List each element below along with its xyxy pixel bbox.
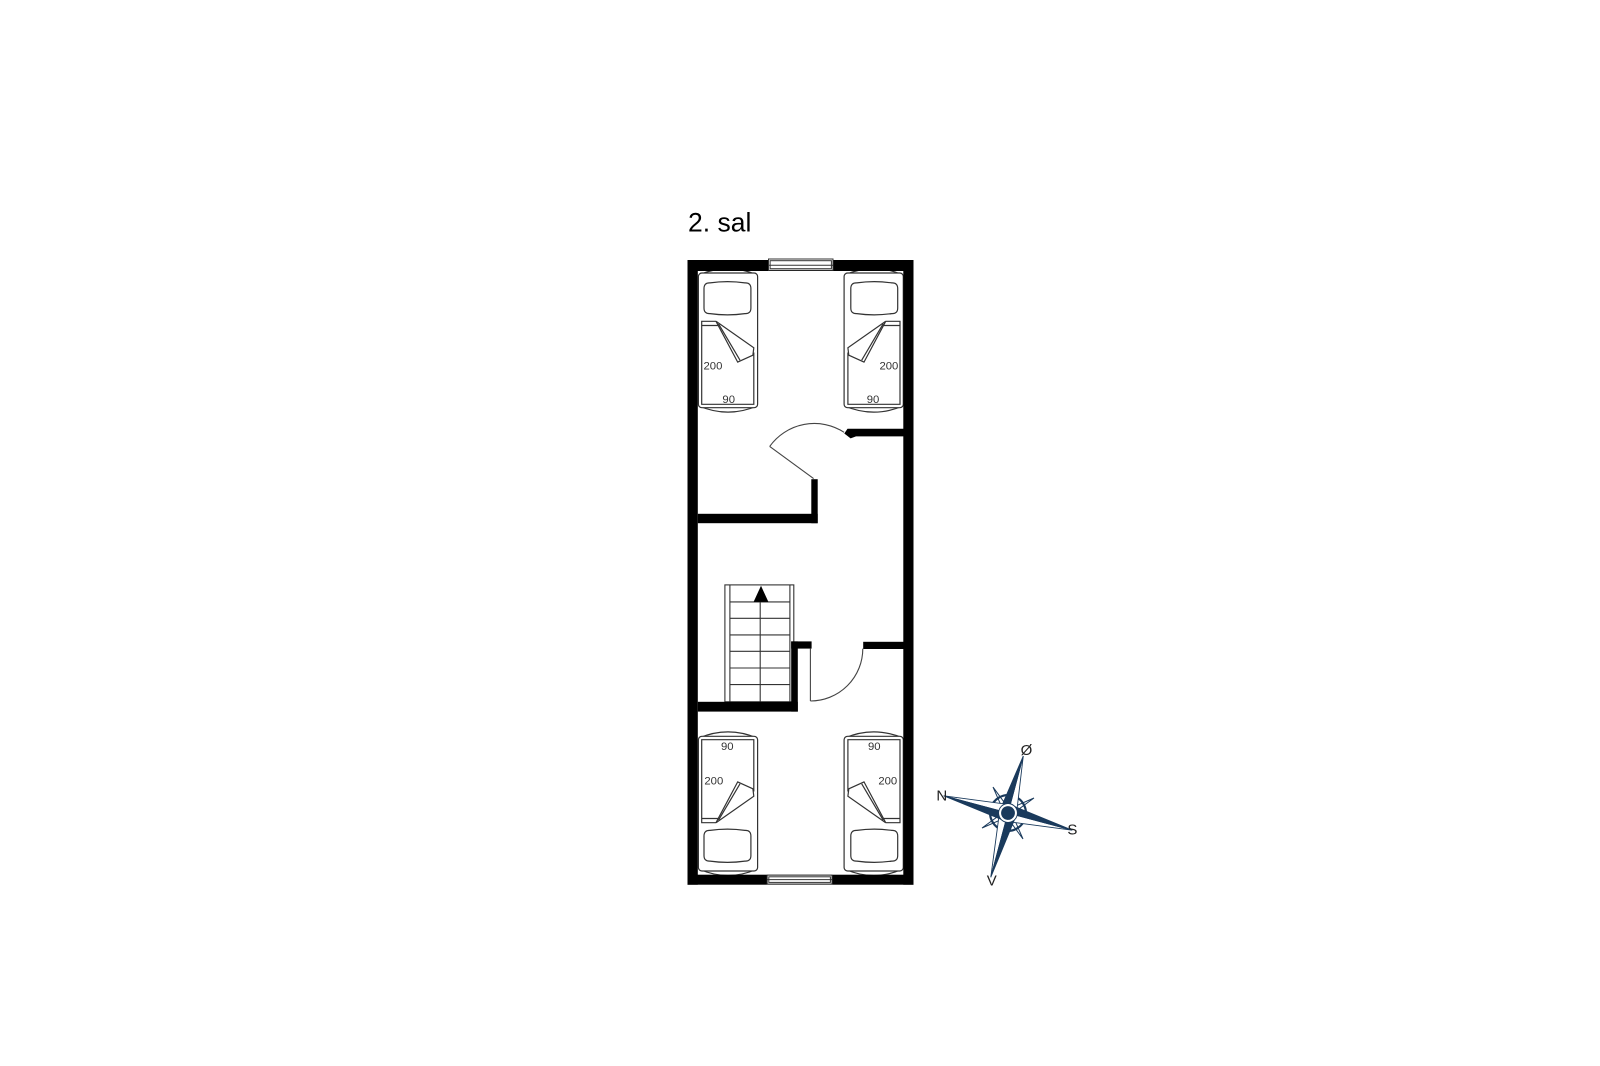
svg-text:90: 90 xyxy=(721,741,734,753)
svg-text:90: 90 xyxy=(867,394,880,406)
svg-text:V: V xyxy=(987,872,997,889)
svg-text:Ø: Ø xyxy=(1021,742,1033,759)
svg-text:200: 200 xyxy=(879,361,898,373)
svg-text:200: 200 xyxy=(878,775,897,787)
svg-text:200: 200 xyxy=(704,775,723,787)
svg-text:200: 200 xyxy=(704,361,723,373)
svg-text:90: 90 xyxy=(868,741,881,753)
svg-text:S: S xyxy=(1067,821,1077,838)
svg-text:N: N xyxy=(936,788,947,805)
svg-text:2. sal: 2. sal xyxy=(688,208,751,238)
svg-text:90: 90 xyxy=(722,394,735,406)
